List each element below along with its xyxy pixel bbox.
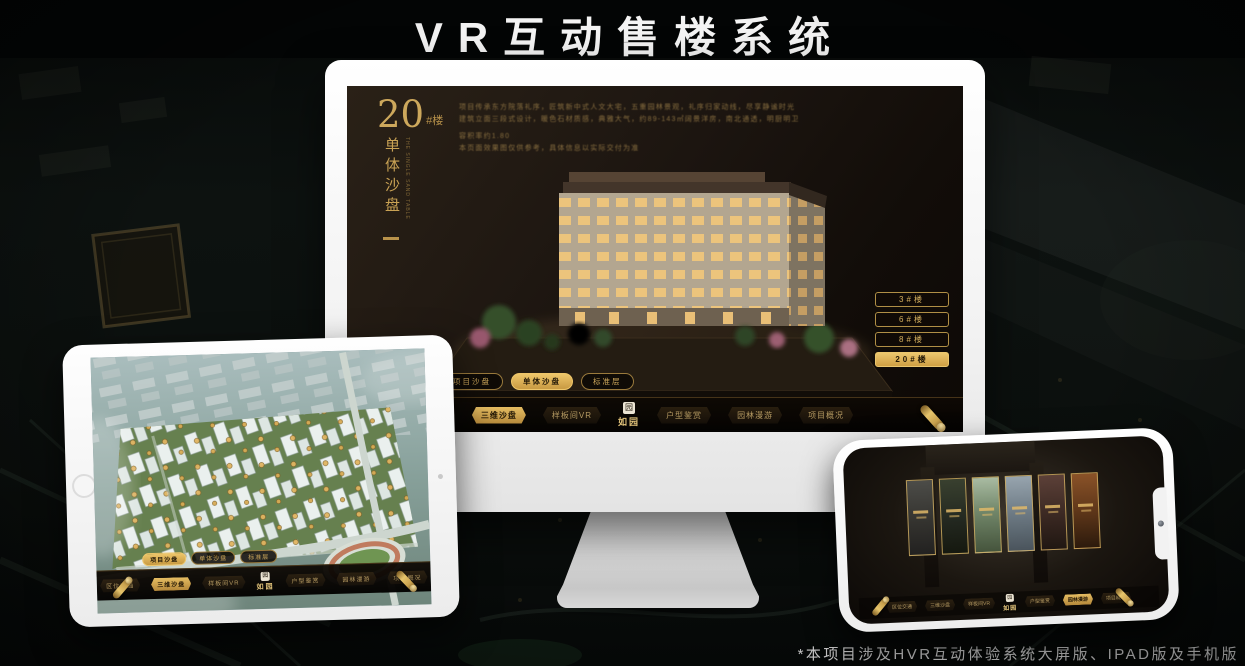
scene-card-building[interactable] (1005, 475, 1035, 552)
description-line: 项目传承东方院落礼序，匠筑新中式人文大宅，五重园林景观，礼序归家动线，尽享静谧时… (459, 102, 899, 114)
scene-card-interior-grey[interactable] (906, 479, 936, 556)
gate-silhouette (926, 441, 1036, 476)
brand-logo: 园 如园 (618, 402, 640, 428)
promo-canvas: VR互动售楼系统 (0, 0, 1245, 666)
subtab-standard-floor[interactable]: 标准层 (581, 373, 634, 390)
phone-device: 区位交通 三维沙盘 样板间VR 园 如园 户型鉴赏 园林漫游 项目概况 (832, 427, 1180, 633)
tablet-screen: 项目沙盘 单体沙盘 标准层 区位交通 三维沙盘 样板间VR 园 如园 户型鉴赏 … (90, 348, 431, 613)
section-title-vertical: 单体沙盘 (381, 137, 402, 233)
scene-gallery (906, 472, 1101, 556)
page-title: VR互动售楼系统 (0, 4, 1245, 65)
floor-selector: 3#楼 6#楼 8#楼 20#楼 (875, 292, 949, 367)
tablet-nav-item-3d-sandbox[interactable]: 三维沙盘 (151, 577, 191, 591)
floor-button-20[interactable]: 20#楼 (875, 352, 949, 367)
scene-card-warm-interior[interactable] (1071, 472, 1101, 549)
nav-item-3d-sandbox[interactable]: 三维沙盘 (472, 407, 526, 424)
description-line: 容积率约1.80 (459, 131, 899, 143)
phone-nav-item-location[interactable]: 区位交通 (887, 601, 917, 613)
tablet-brand-name: 如园 (256, 581, 274, 591)
tablet-nav-item-showroom-vr[interactable]: 样板间VR (202, 575, 246, 589)
phone-brand-name: 如园 (1003, 602, 1017, 612)
phone-notch (1152, 487, 1169, 560)
phone-nav-item-garden-tour[interactable]: 园林漫游 (1063, 593, 1093, 605)
brand-seal-icon: 园 (623, 402, 635, 414)
section-title-english: THE SINGLE SAND TABLE (404, 137, 410, 227)
tablet-subtab-standard-floor[interactable]: 标准层 (240, 550, 277, 564)
tablet-home-button[interactable] (72, 474, 97, 499)
phone-nav-item-showroom-vr[interactable]: 样板间VR (963, 598, 995, 610)
floor-button-8[interactable]: 8#楼 (875, 332, 949, 347)
nav-item-showroom-vr[interactable]: 样板间VR (543, 407, 601, 424)
subtab-single-sandbox[interactable]: 单体沙盘 (511, 373, 573, 390)
tablet-device: 项目沙盘 单体沙盘 标准层 区位交通 三维沙盘 样板间VR 园 如园 户型鉴赏 … (62, 335, 460, 628)
tablet-brand-seal-icon: 园 (261, 571, 270, 580)
building-number-suffix: #楼 (426, 112, 443, 128)
nav-item-garden-tour[interactable]: 园林漫游 (728, 407, 782, 424)
tablet-nav-item-garden-tour[interactable]: 园林漫游 (336, 572, 376, 586)
phone-nav-item-floorplans[interactable]: 户型鉴赏 (1025, 595, 1055, 607)
floor-button-3[interactable]: 3#楼 (875, 292, 949, 307)
building-heading: 20 #楼 单体沙盘 THE SINGLE SAND TABLE (377, 96, 443, 240)
tablet-brand-logo: 园 如园 (256, 571, 275, 591)
footnote-text: *本项目涉及HVR互动体验系统大屏版、IPAD版及手机版 (798, 643, 1239, 664)
scene-card-night-facade[interactable] (1038, 473, 1068, 550)
floor-button-6[interactable]: 6#楼 (875, 312, 949, 327)
tablet-subtab-project-sandbox[interactable]: 项目沙盘 (142, 552, 186, 566)
phone-nav-item-3d-sandbox[interactable]: 三维沙盘 (925, 599, 955, 611)
tablet-camera-icon (438, 474, 443, 479)
monitor-stand (557, 510, 759, 608)
phone-camera-icon (1158, 520, 1164, 526)
scene-card-lounge[interactable] (939, 478, 969, 555)
sandbox-subtabs: 项目沙盘 单体沙盘 标准层 (441, 373, 634, 390)
phone-brand-seal-icon: 园 (1006, 593, 1014, 601)
phone-brand-logo: 园 如园 (1003, 593, 1018, 612)
tablet-subtab-single-sandbox[interactable]: 单体沙盘 (191, 551, 235, 565)
phone-screen: 区位交通 三维沙盘 样板间VR 园 如园 户型鉴赏 园林漫游 项目概况 (842, 435, 1169, 624)
heading-underline (383, 237, 399, 240)
scene-card-garden[interactable] (972, 476, 1002, 553)
building-number: 20 (377, 96, 424, 133)
building-description: 项目传承东方院落礼序，匠筑新中式人文大宅，五重园林景观，礼序归家动线，尽享静谧时… (459, 102, 899, 155)
brand-name: 如园 (618, 415, 640, 428)
tablet-nav-item-floorplans[interactable]: 户型鉴赏 (285, 573, 325, 587)
nav-item-floorplans[interactable]: 户型鉴赏 (657, 407, 711, 424)
description-line: 建筑立面三段式设计，暖色石材质感，典雅大气，约89-143㎡阔景洋房，南北通透，… (459, 114, 899, 126)
description-line: 本页面效果图仅供参考，具体信息以实际交付为准 (459, 143, 899, 155)
nav-item-project-overview[interactable]: 项目概况 (799, 407, 853, 424)
